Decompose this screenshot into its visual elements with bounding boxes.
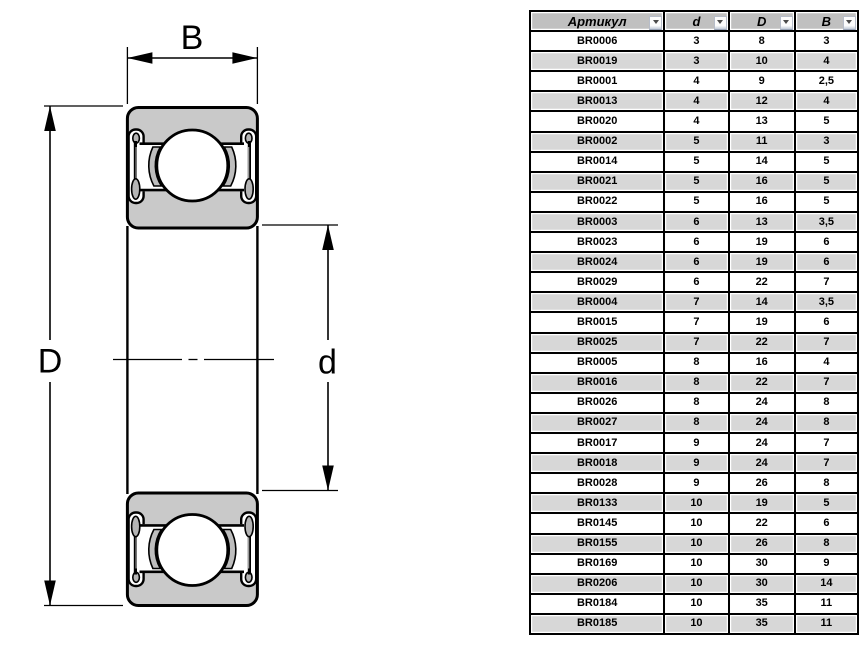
svg-text:d: d xyxy=(318,344,337,382)
svg-text:B: B xyxy=(181,19,204,57)
svg-text:D: D xyxy=(38,343,63,381)
